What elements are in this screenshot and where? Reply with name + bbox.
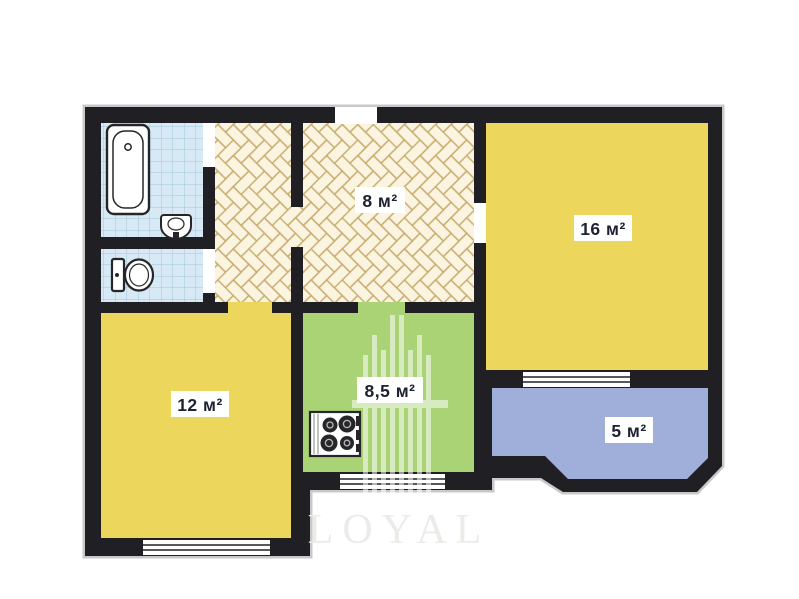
entrance-door-opening: [335, 107, 377, 124]
bedroom-window: [143, 540, 270, 555]
svg-text:5 м²: 5 м²: [611, 421, 646, 441]
svg-text:16 м²: 16 м²: [580, 219, 626, 239]
svg-text:12 м²: 12 м²: [177, 395, 223, 415]
toilet-door-opening: [203, 249, 215, 293]
hallway-floor-corridor: [215, 123, 291, 302]
bedroom-floor: [101, 313, 291, 538]
watermark-text: LOYAL: [308, 507, 491, 553]
floor-plan-svg: LOYAL 8 м² 16 м² 12 м² 8,5 м² 5 м²: [0, 0, 799, 599]
room-label-kitchen: 8,5 м²: [357, 377, 423, 403]
living-room-door-opening: [474, 203, 486, 243]
room-label-bedroom: 12 м²: [171, 391, 229, 417]
floor-plan-image: LOYAL 8 м² 16 м² 12 м² 8,5 м² 5 м²: [0, 0, 799, 599]
balcony-window: [523, 372, 630, 387]
svg-text:8 м²: 8 м²: [362, 191, 397, 211]
room-label-balcony: 5 м²: [605, 417, 653, 443]
bathroom-door-opening: [203, 123, 215, 167]
svg-text:8,5 м²: 8,5 м²: [365, 381, 416, 401]
hallway-connector-opening: [291, 207, 303, 247]
sink-icon: [161, 215, 191, 239]
room-label-hallway: 8 м²: [355, 187, 405, 213]
bathtub-icon: [107, 125, 149, 214]
living-room-floor: [486, 123, 708, 370]
stove-icon: [310, 412, 360, 456]
kitchen-door-opening: [358, 302, 405, 314]
toilet-icon: [112, 259, 153, 291]
room-label-living-room: 16 м²: [574, 215, 632, 241]
bedroom-door-opening: [228, 302, 272, 314]
